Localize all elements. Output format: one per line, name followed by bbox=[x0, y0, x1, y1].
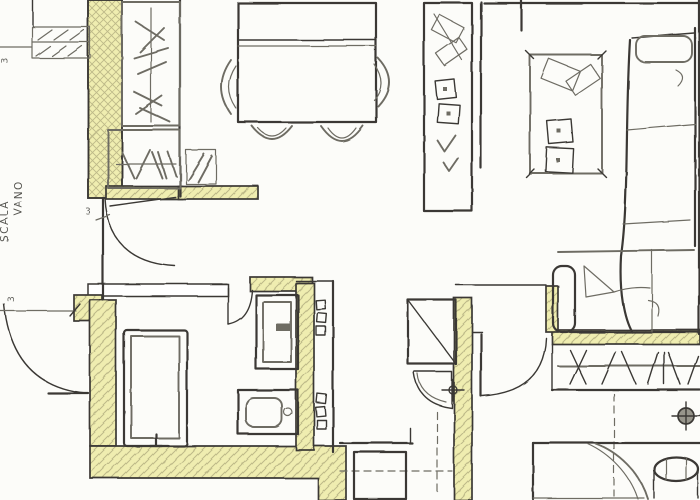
dining-table bbox=[238, 3, 376, 122]
room-label-scala: SCALA bbox=[0, 200, 11, 242]
cabinet-item-stroke bbox=[434, 14, 462, 60]
tv-table bbox=[526, 51, 606, 177]
shaft-square bbox=[316, 407, 326, 417]
chair-right bbox=[378, 58, 389, 106]
tv-table-outline bbox=[530, 55, 602, 173]
side-table bbox=[354, 452, 406, 499]
tall-cabinet bbox=[424, 3, 472, 211]
armchair-fold bbox=[614, 288, 650, 293]
window-hatch bbox=[36, 30, 84, 56]
cabinet-item-2 bbox=[436, 37, 468, 65]
cabinet-check-1 bbox=[437, 135, 455, 151]
shower-handle bbox=[276, 324, 290, 331]
shower-box bbox=[256, 295, 298, 369]
sofa-seam-1 bbox=[627, 124, 695, 130]
bedroom-wardrobe bbox=[552, 344, 700, 390]
walls bbox=[33, 0, 700, 500]
shaft-square bbox=[316, 326, 325, 335]
closet-diagonal-line bbox=[408, 300, 456, 364]
wall-bath-bottom-L bbox=[90, 446, 346, 500]
dim-left-mid: 3 bbox=[7, 296, 17, 302]
closet-diagonal bbox=[408, 300, 456, 364]
shaft-square bbox=[316, 300, 326, 310]
hanger-strokes bbox=[134, 22, 170, 122]
wall-left-top bbox=[88, 0, 122, 198]
dining-table-group bbox=[222, 3, 390, 141]
cabinet-check-2 bbox=[443, 158, 458, 171]
floor-plan-drawing: VANO SCALA 3 3 3 bbox=[0, 0, 700, 500]
shower-inner bbox=[263, 302, 291, 362]
door-swing-arc bbox=[105, 198, 175, 266]
door-swing-arc bbox=[228, 290, 252, 324]
living-room bbox=[526, 28, 700, 332]
table-box-1-dot bbox=[557, 129, 561, 133]
hanger-strokes bbox=[570, 350, 698, 384]
sofa-seam-2 bbox=[623, 220, 690, 224]
armchair-throw bbox=[584, 266, 614, 297]
door-bathroom bbox=[228, 288, 252, 324]
heater-shade bbox=[418, 374, 446, 402]
sofa-sectional bbox=[621, 28, 695, 332]
room-label-vano: VANO bbox=[13, 180, 25, 216]
drum-top bbox=[654, 457, 698, 481]
bed bbox=[533, 443, 700, 499]
shaft-square bbox=[316, 394, 326, 404]
ceiling-lamp bbox=[672, 402, 700, 430]
vent-shaft bbox=[316, 300, 327, 429]
shaft-square bbox=[317, 313, 327, 323]
table-box-2-dot bbox=[556, 158, 560, 162]
dim-hall: 3 bbox=[85, 207, 91, 217]
bedside-drum bbox=[654, 457, 698, 498]
cabinet-box-1-dot bbox=[443, 87, 447, 91]
sofa-pillow bbox=[636, 36, 692, 62]
stair-window bbox=[0, 27, 90, 58]
sofa-curl-2 bbox=[648, 300, 659, 316]
bathtub bbox=[124, 330, 187, 446]
chair-bottom-2 bbox=[321, 126, 363, 141]
radiator-hatch bbox=[188, 154, 212, 182]
cabinet-box-2-dot bbox=[446, 111, 450, 115]
wall-bath-top-left bbox=[88, 284, 228, 296]
wc-flush-dot bbox=[284, 408, 292, 416]
tub-outline bbox=[124, 330, 187, 446]
floor-plan-canvas: VANO SCALA 3 3 3 bbox=[0, 0, 700, 500]
chair-left-inner bbox=[229, 66, 236, 108]
cabinet-outline bbox=[424, 3, 472, 211]
wc-bidet bbox=[238, 390, 298, 434]
chair-bottom-2-inner bbox=[328, 128, 356, 138]
wardrobe-top bbox=[122, 2, 180, 126]
dim-top-left: 3 bbox=[1, 58, 11, 64]
door-bedroom bbox=[481, 334, 546, 396]
wc-bowl bbox=[246, 398, 282, 427]
door-hall bbox=[105, 197, 175, 266]
shaft-square bbox=[317, 420, 326, 429]
wall-hall-right bbox=[178, 186, 258, 199]
blanket-curve-1 bbox=[596, 444, 648, 499]
sofa-curl-1 bbox=[676, 70, 683, 86]
wall-bath-left bbox=[90, 300, 116, 446]
tub-inner bbox=[131, 336, 179, 438]
radiator-frame bbox=[186, 150, 216, 184]
armchair-top bbox=[558, 250, 694, 252]
radiator-sketch bbox=[186, 150, 216, 184]
door-swing-arc bbox=[482, 338, 546, 396]
